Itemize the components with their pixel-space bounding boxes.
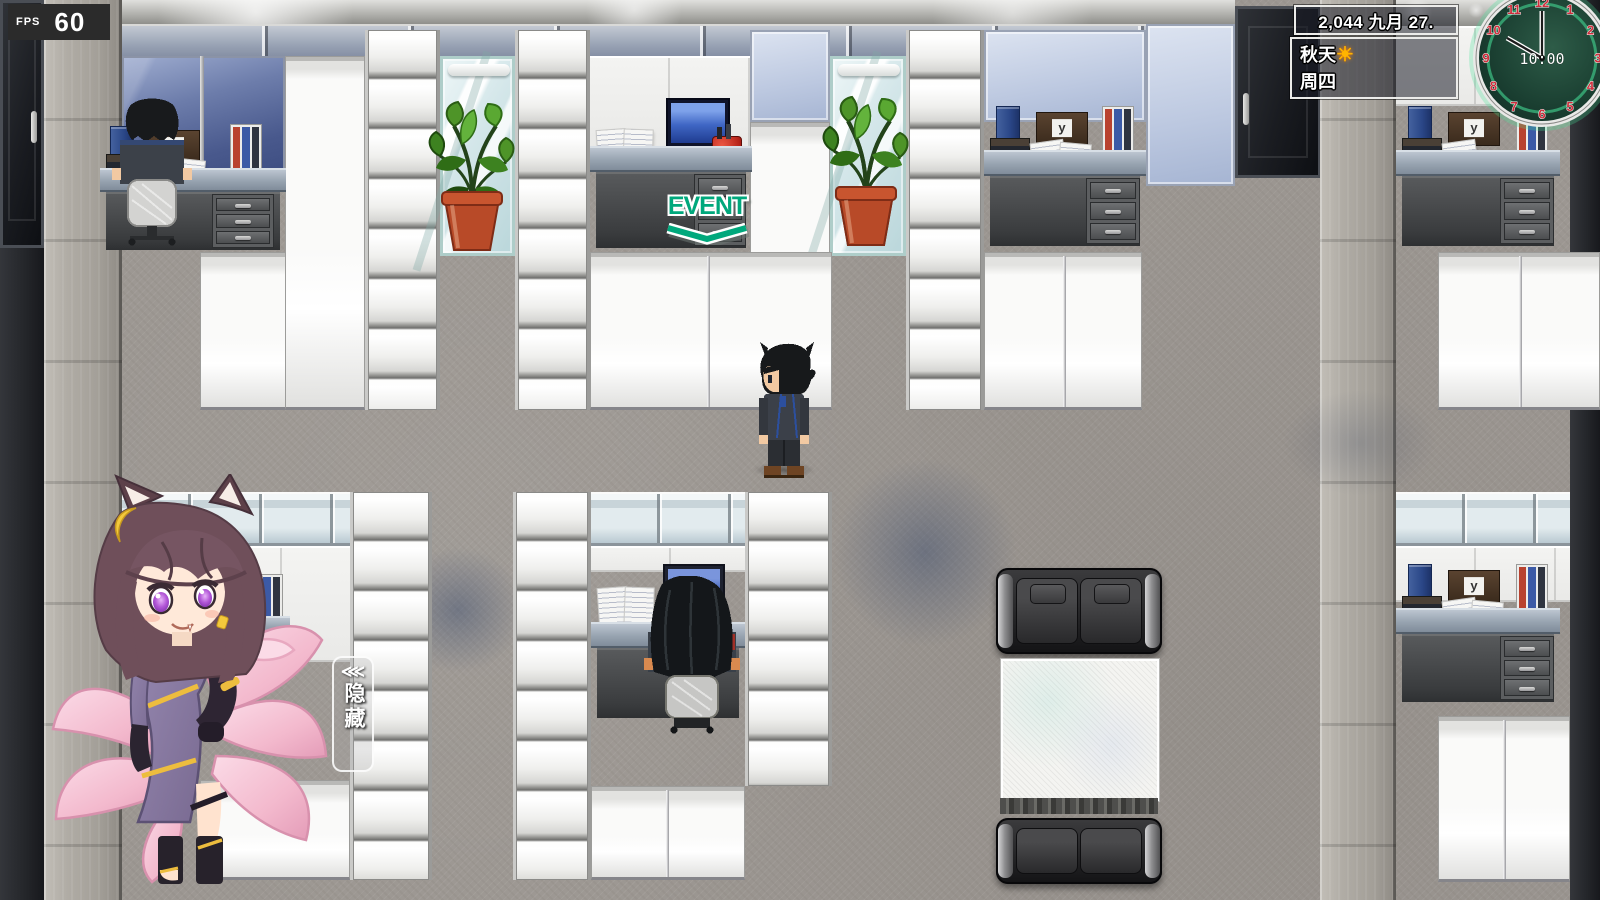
svg-text:3: 3	[1594, 51, 1600, 66]
glass-panel-tall	[1146, 24, 1235, 186]
digital-time: 10:00	[1519, 50, 1564, 68]
right-door-handle	[1243, 93, 1249, 125]
sofa-armrest	[998, 574, 1013, 648]
game-viewport: FPS 60 EVENT ⋘ 隐藏 2,044 九月 27. 秋天☀ 周四	[0, 0, 1600, 900]
svg-text:1: 1	[1566, 2, 1573, 17]
cubicle-shelf-column	[513, 492, 591, 880]
floor-shadow	[830, 455, 1020, 650]
cubicle-shelf-column	[745, 492, 832, 786]
svg-text:10: 10	[1486, 23, 1500, 38]
sun-icon: ☀	[1336, 44, 1354, 66]
svg-text:4: 4	[1587, 79, 1595, 94]
left-door-handle	[31, 111, 37, 143]
table-edge	[1000, 798, 1158, 814]
hide-companion-button[interactable]: ⋘ 隐藏	[332, 656, 374, 772]
partition-panel	[591, 786, 745, 880]
svg-text:11: 11	[1507, 2, 1521, 17]
floor-shadow	[1280, 388, 1440, 498]
fps-value: 60	[54, 7, 85, 38]
drawer	[1504, 182, 1550, 199]
svg-text:12: 12	[1535, 0, 1549, 10]
fox-girl-companion[interactable]	[48, 474, 330, 884]
magazine-rack	[1516, 564, 1548, 612]
drawer	[1090, 182, 1136, 199]
event-label: EVENT	[652, 192, 762, 221]
window-rail	[838, 64, 900, 76]
weekday-text: 周四	[1300, 69, 1448, 96]
player-character[interactable]	[748, 338, 820, 482]
event-chevron-icon	[663, 223, 751, 245]
weather-display: 秋天☀ 周四	[1290, 37, 1458, 99]
event-marker[interactable]: EVENT	[652, 192, 762, 250]
magazine-rack	[1102, 106, 1134, 154]
magazine-rack	[230, 124, 262, 172]
analog-clock: 12 1 2 3 4 5 6 7 8 9 10 11 10:00	[1468, 0, 1600, 132]
coffee-table	[1000, 658, 1160, 802]
cubicle-shelf-column	[906, 30, 984, 410]
drawer	[1504, 660, 1550, 677]
panel-divider	[707, 256, 710, 407]
sofa-cushion	[1016, 828, 1078, 874]
window-rail	[448, 64, 510, 76]
panel-divider	[1519, 256, 1522, 407]
top-wall-strip	[122, 0, 1235, 26]
desk-bottom-right	[1396, 556, 1560, 702]
drawer	[1504, 223, 1550, 240]
partition-panel	[200, 252, 286, 410]
drawer	[1504, 679, 1550, 696]
npc-worker-top-left[interactable]	[108, 96, 196, 246]
drawer	[1090, 202, 1136, 219]
drawer	[1090, 223, 1136, 240]
drawer-unit	[1500, 178, 1554, 244]
svg-text:8: 8	[1490, 79, 1497, 94]
sofa-armrest	[1145, 574, 1160, 648]
sofa-cushion	[1080, 828, 1142, 874]
svg-text:7: 7	[1510, 99, 1517, 114]
svg-text:5: 5	[1566, 99, 1573, 114]
svg-text:9: 9	[1482, 51, 1489, 66]
desk-surface	[1396, 150, 1560, 176]
sofa-button	[1094, 584, 1130, 604]
drawer-unit	[1500, 636, 1554, 700]
svg-text:2: 2	[1587, 23, 1594, 38]
sofa-armrest	[1145, 824, 1160, 878]
desk-top-right	[984, 98, 1146, 246]
cubicle-shelf-column	[515, 30, 590, 410]
desk-surface	[1396, 608, 1560, 634]
glass-panel	[750, 30, 830, 122]
drawer	[216, 198, 270, 211]
sofa-bottom	[996, 818, 1162, 884]
desk-surface	[984, 150, 1146, 176]
lower-glass-strip	[1396, 492, 1570, 546]
fps-counter: FPS 60	[8, 4, 110, 40]
sofa-top	[996, 568, 1162, 654]
season-row: 秋天☀	[1300, 42, 1448, 69]
panel-divider	[1503, 720, 1506, 879]
svg-text:6: 6	[1538, 107, 1545, 122]
fps-label: FPS	[16, 16, 40, 28]
panel-divider	[666, 790, 669, 877]
drawer	[216, 214, 270, 227]
lower-glass-strip	[591, 492, 745, 546]
drawer	[216, 231, 270, 244]
sofa-button	[1030, 584, 1066, 604]
npc-worker-bottom[interactable]	[640, 576, 744, 734]
drawer	[1504, 202, 1550, 219]
date-text: 2,044 九月 27.	[1318, 8, 1434, 33]
date-display: 2,044 九月 27.	[1294, 5, 1458, 35]
season-text: 秋天	[1300, 45, 1336, 65]
fox-head	[94, 474, 265, 683]
triple-left-chevron-icon: ⋘	[341, 662, 365, 682]
desk-surface	[590, 146, 752, 172]
hide-button-label: 隐藏	[338, 682, 368, 732]
drawer-unit	[212, 194, 274, 248]
potted-plant-1	[428, 100, 516, 255]
drawer-unit	[1086, 178, 1140, 244]
potted-plant-2	[822, 95, 910, 250]
drawer	[1504, 640, 1550, 657]
panel-divider	[1063, 256, 1066, 407]
partition-panel	[1438, 716, 1570, 882]
fox-eye-right	[193, 582, 217, 609]
partition-panel	[1438, 252, 1600, 410]
partition-panel	[984, 252, 1142, 410]
sofa-armrest	[998, 824, 1013, 878]
right-wall-column	[1570, 0, 1600, 900]
white-partition-panel	[285, 56, 365, 410]
